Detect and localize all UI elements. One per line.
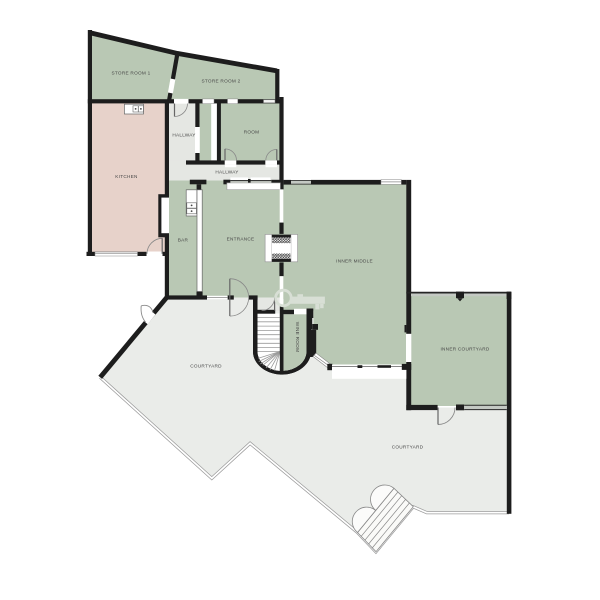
- svg-text:ROOM: ROOM: [244, 130, 260, 135]
- svg-text:HALLWAY: HALLWAY: [215, 170, 239, 175]
- svg-text:COURTYARD: COURTYARD: [392, 445, 424, 450]
- svg-text:ENTRANCE: ENTRANCE: [227, 237, 255, 242]
- svg-text:HALLWAY: HALLWAY: [172, 133, 196, 138]
- svg-text:STORE ROOM 1: STORE ROOM 1: [112, 71, 151, 76]
- svg-text:INNER MIDDLE: INNER MIDDLE: [336, 259, 373, 264]
- svg-text:BAR: BAR: [178, 238, 189, 243]
- svg-text:KITCHEN: KITCHEN: [115, 174, 137, 179]
- svg-text:INNER COURTYARD: INNER COURTYARD: [440, 347, 489, 352]
- svg-text:WINE ROOM: WINE ROOM: [295, 322, 300, 352]
- svg-text:STORE ROOM 2: STORE ROOM 2: [202, 79, 241, 84]
- svg-text:COURTYARD: COURTYARD: [190, 364, 222, 369]
